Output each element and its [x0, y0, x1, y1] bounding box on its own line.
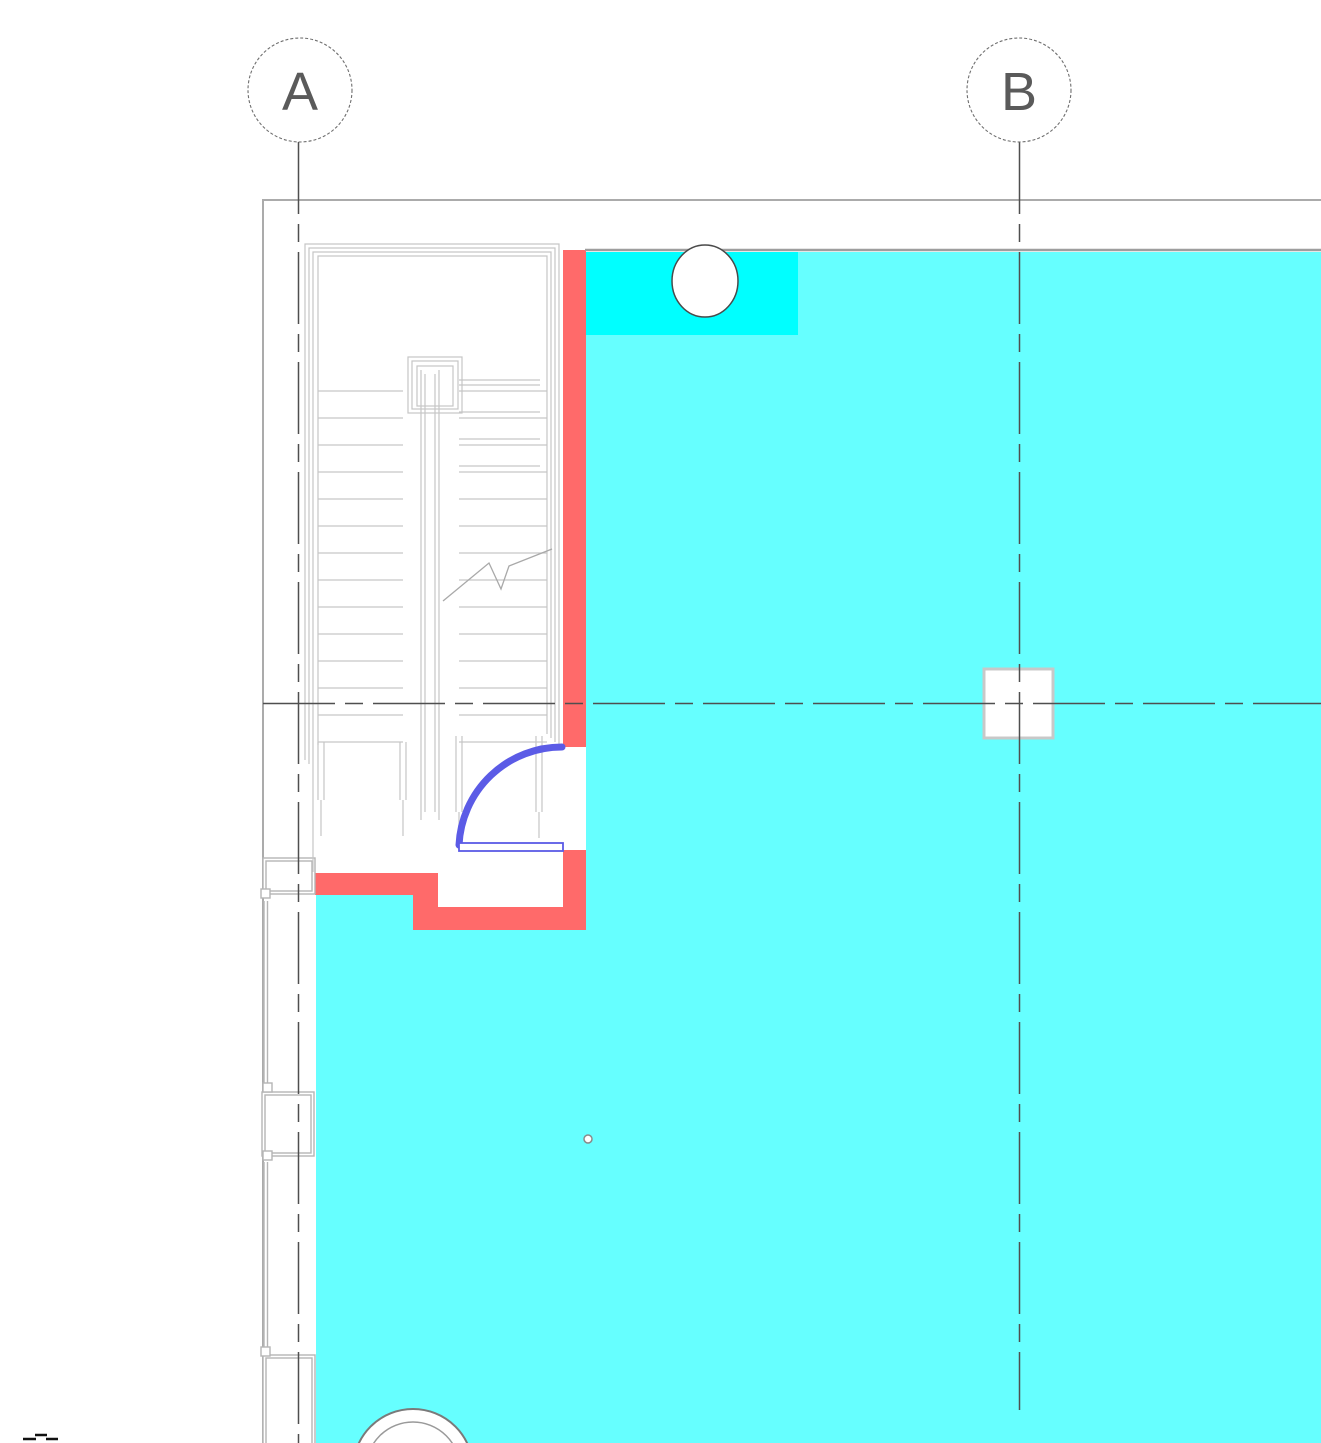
- grid-bubble-b-label: B: [1001, 62, 1037, 122]
- highlighted-wall-upper: [563, 250, 586, 747]
- floor-plan-canvas: A B: [0, 0, 1321, 1443]
- door-leaf: [459, 843, 563, 851]
- wall-pier-inner: [266, 1358, 312, 1443]
- grid-bubble-b: B: [967, 38, 1071, 142]
- grid-bubble-a-label: A: [282, 62, 318, 122]
- mullion-nub: [263, 1083, 272, 1092]
- mullion-nub: [261, 889, 270, 898]
- grid-bubble-a: A: [248, 38, 352, 142]
- small-dot-marker: [584, 1135, 592, 1143]
- mullion-nub: [261, 1347, 270, 1356]
- plan-drawing: A B: [0, 0, 1321, 1443]
- detail-circle-marker: [672, 245, 738, 317]
- wall-pier-inner: [266, 861, 312, 891]
- wall-pier-inner: [265, 1095, 311, 1153]
- mullion-nub: [263, 1151, 272, 1160]
